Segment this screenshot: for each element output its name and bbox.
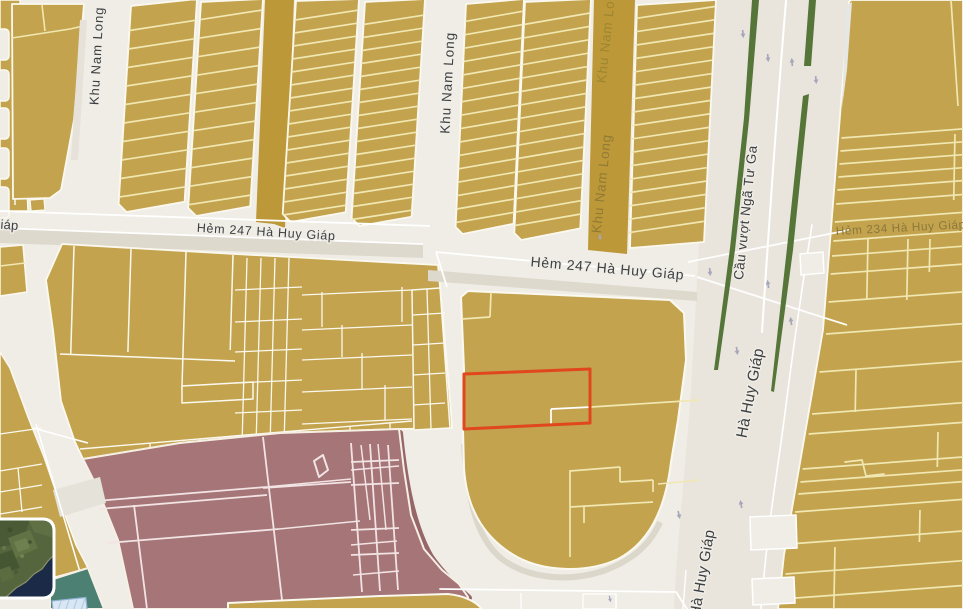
svg-text:Giáp: Giáp: [0, 216, 19, 233]
